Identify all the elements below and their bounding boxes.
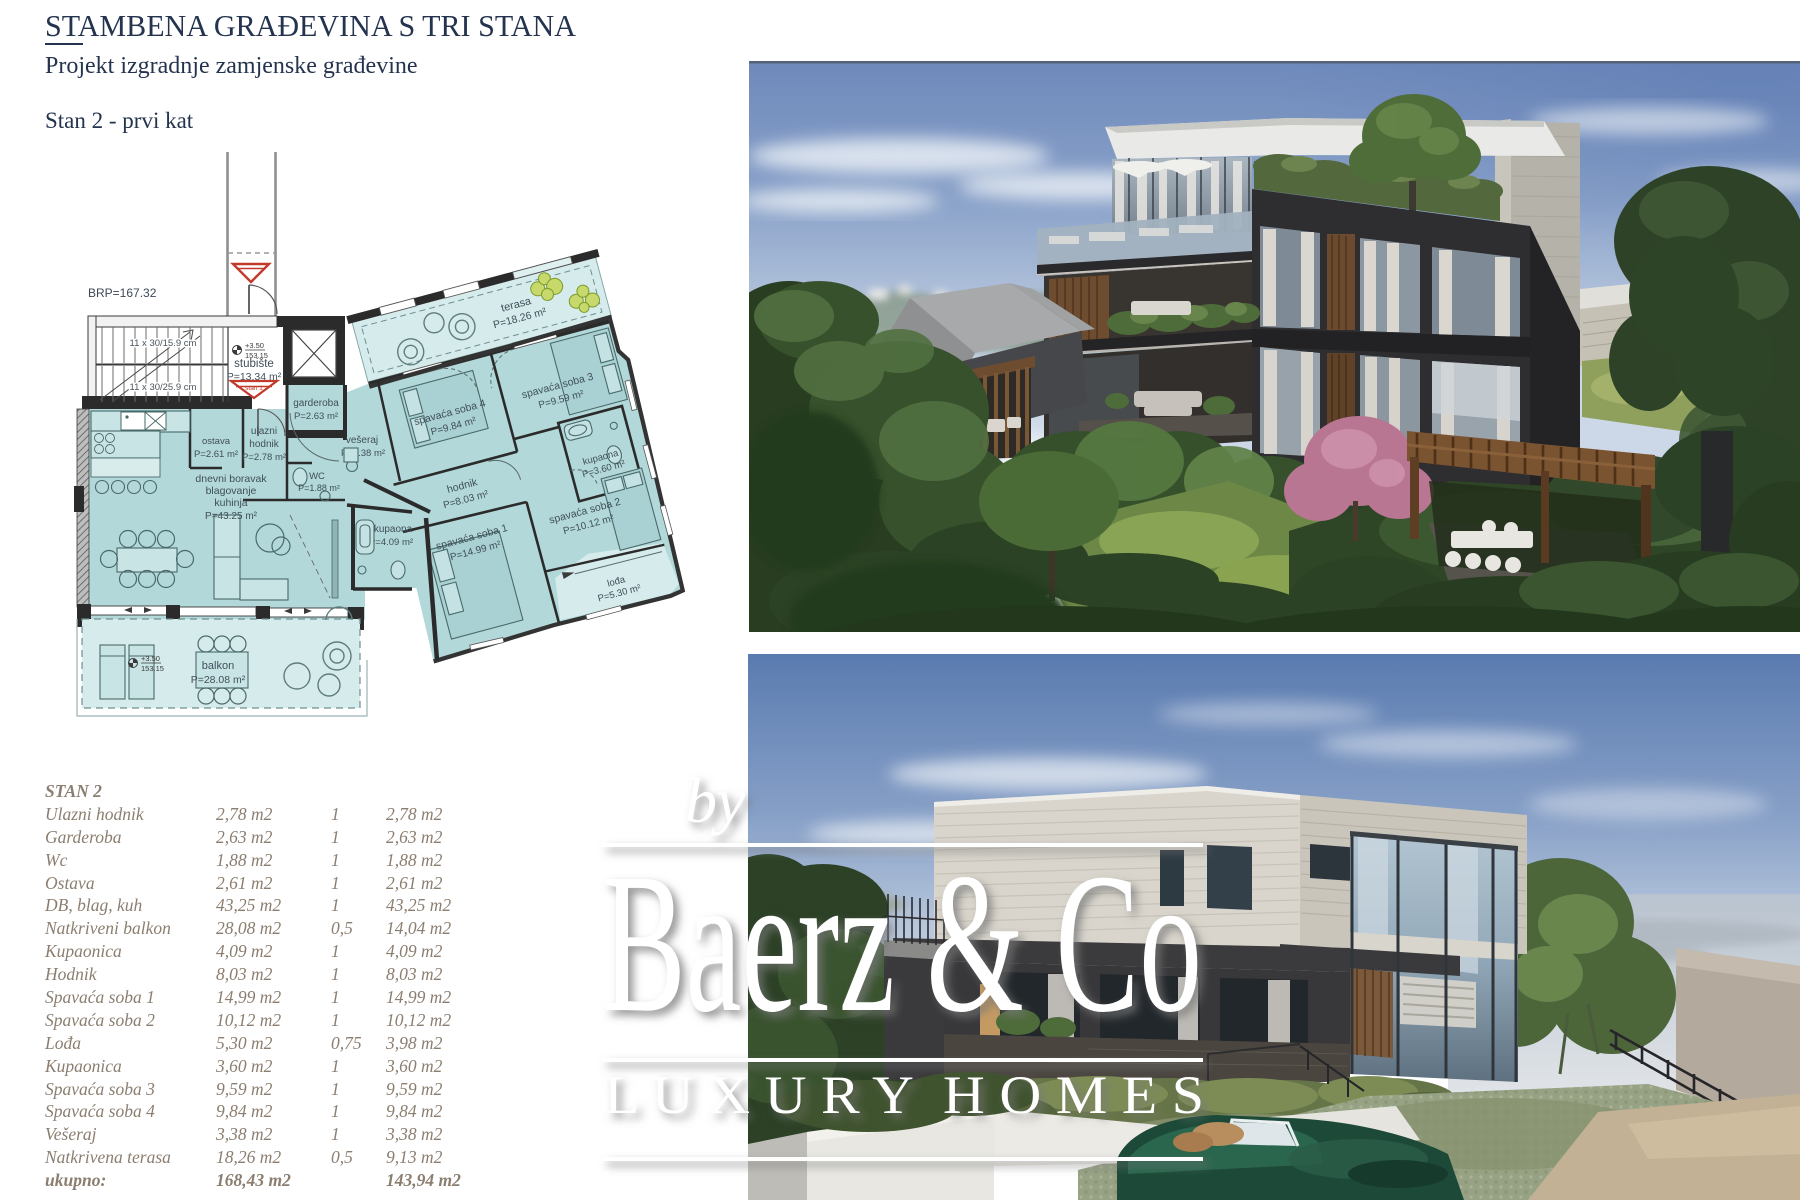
svg-text:L U X U R Y H O M E S: L U X U R Y H O M E S [604,1065,1204,1125]
svg-text:Baerz & Co: Baerz & Co [602,833,1202,1054]
svg-text:by: by [685,765,746,836]
